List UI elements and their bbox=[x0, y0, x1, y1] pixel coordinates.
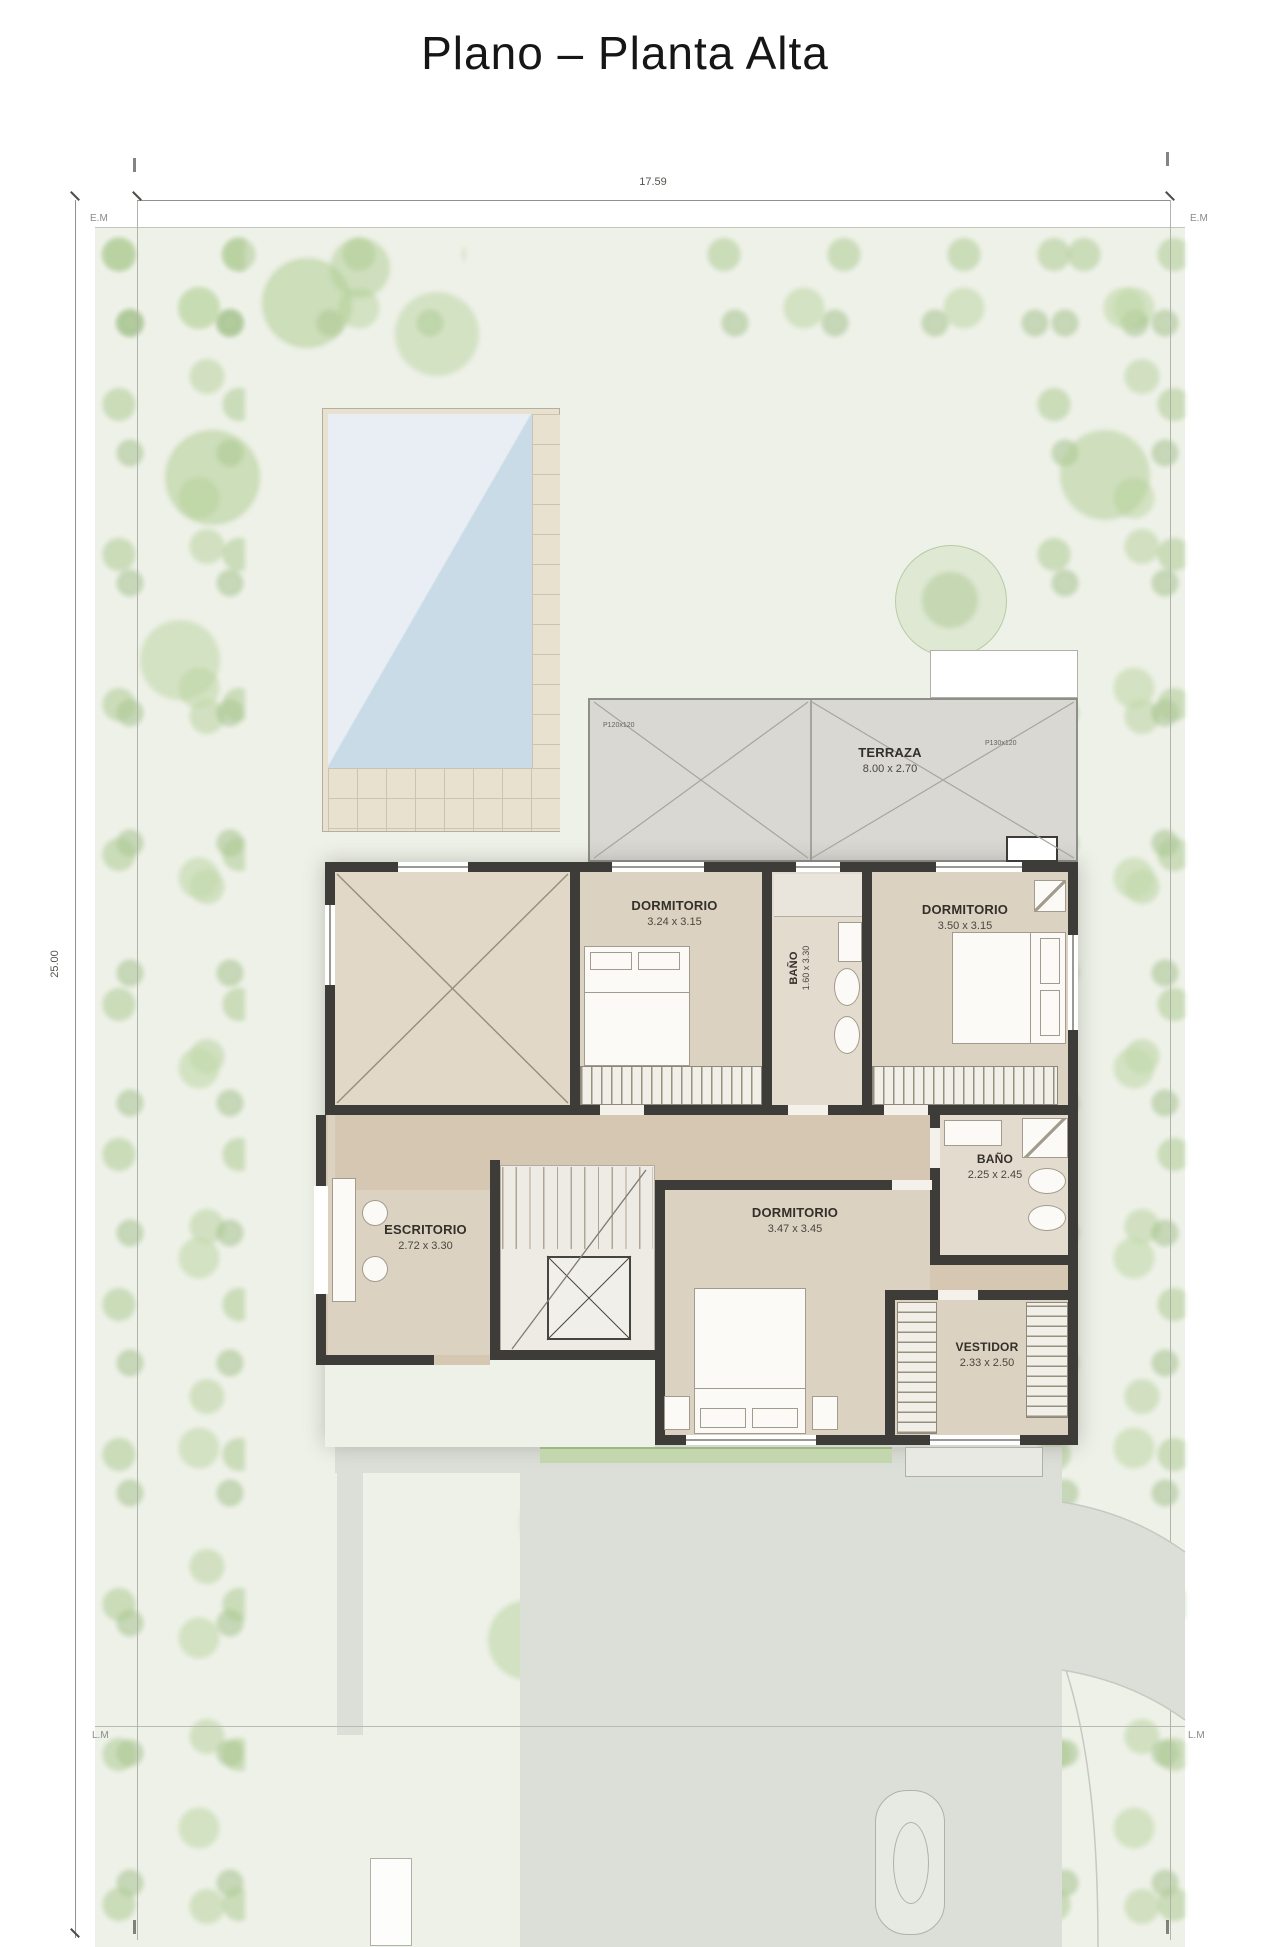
terrace-roof-edge bbox=[930, 650, 1078, 698]
label-dormitorio-1: DORMITORIO 3.24 x 3.15 bbox=[582, 898, 767, 929]
boundary-label-lm-right: L.M bbox=[1188, 1730, 1205, 1741]
tree bbox=[140, 620, 220, 700]
label-escritorio-name: ESCRITORIO bbox=[384, 1222, 467, 1237]
floor-plan-canvas: Plano – Planta Alta 17.59 25.00 E.M E.M … bbox=[0, 0, 1280, 1947]
window-tag-right: P130x120 bbox=[985, 740, 1017, 747]
tree bbox=[1060, 430, 1150, 520]
footprint-cutout bbox=[490, 1360, 655, 1447]
terrace-divider bbox=[810, 700, 812, 860]
pool-deck-bottom bbox=[328, 768, 560, 831]
ac-unit bbox=[1006, 836, 1058, 862]
window bbox=[936, 862, 1022, 872]
closet-dormitorio-2 bbox=[872, 1066, 1058, 1105]
dimension-line-top bbox=[137, 200, 1170, 201]
label-banio-1-name: BAÑO bbox=[788, 951, 800, 984]
lot-width-dimension: 17.59 bbox=[553, 176, 753, 188]
bed-fold-line bbox=[1030, 932, 1031, 1044]
planter-strip bbox=[540, 1447, 892, 1463]
window bbox=[398, 862, 468, 872]
nightstand bbox=[812, 1396, 838, 1430]
label-escritorio-size: 2.72 x 3.30 bbox=[338, 1239, 513, 1253]
page-title: Plano – Planta Alta bbox=[0, 26, 1250, 80]
label-banio-2-name: BAÑO bbox=[977, 1152, 1013, 1166]
tree bbox=[330, 238, 390, 298]
label-terraza-size: 8.00 x 2.70 bbox=[790, 762, 990, 776]
stair-void bbox=[547, 1256, 631, 1340]
wall bbox=[316, 1355, 434, 1365]
wall bbox=[862, 862, 872, 1115]
tree bbox=[922, 572, 978, 628]
wall bbox=[325, 862, 335, 1115]
corner-mark bbox=[1166, 152, 1169, 166]
boundary-line-right bbox=[1170, 200, 1171, 1940]
walkway-left bbox=[337, 1447, 363, 1735]
corner-mark bbox=[1166, 1920, 1169, 1934]
window bbox=[612, 862, 704, 872]
toilet-banio-1 bbox=[834, 968, 860, 1006]
label-dormitorio-3: DORMITORIO 3.47 x 3.45 bbox=[700, 1205, 890, 1236]
window bbox=[796, 862, 840, 872]
label-banio-1-size: 1.60 x 3.30 bbox=[801, 908, 813, 1028]
label-dormitorio-3-size: 3.47 x 3.45 bbox=[700, 1222, 890, 1236]
bidet-banio-1 bbox=[834, 1016, 860, 1054]
label-terraza: TERRAZA 8.00 x 2.70 bbox=[790, 745, 990, 776]
balcony-vestidor bbox=[905, 1447, 1043, 1477]
chair-escritorio bbox=[362, 1256, 388, 1282]
pillow bbox=[638, 952, 680, 970]
wall bbox=[570, 862, 580, 1115]
corner-mark bbox=[133, 1920, 136, 1934]
utility-box bbox=[370, 1858, 412, 1946]
bidet-banio-2 bbox=[1028, 1205, 1066, 1231]
boundary-line-left bbox=[137, 200, 138, 1940]
tree bbox=[165, 430, 260, 525]
bed-fold-line bbox=[584, 992, 690, 993]
sink-banio-1 bbox=[838, 922, 862, 962]
boundary-line-lm bbox=[95, 1726, 1185, 1727]
pool-water bbox=[328, 414, 532, 768]
label-vestidor-size: 2.33 x 2.50 bbox=[908, 1356, 1066, 1370]
door-opening bbox=[938, 1290, 978, 1300]
bed-fold-line bbox=[694, 1388, 806, 1389]
wall bbox=[885, 1290, 1078, 1300]
stair-treads bbox=[502, 1167, 653, 1249]
window bbox=[325, 905, 335, 985]
room-void bbox=[335, 872, 570, 1105]
wall bbox=[490, 1160, 500, 1360]
label-terraza-name: TERRAZA bbox=[858, 745, 922, 760]
footprint-cutout bbox=[325, 1365, 490, 1447]
pillow bbox=[590, 952, 632, 970]
label-dormitorio-2-size: 3.50 x 3.15 bbox=[872, 919, 1058, 933]
label-vestidor-name: VESTIDOR bbox=[956, 1340, 1019, 1354]
wall bbox=[885, 1290, 895, 1445]
pillow bbox=[752, 1408, 798, 1428]
window bbox=[1068, 935, 1078, 1030]
door-opening bbox=[892, 1180, 932, 1190]
driveway bbox=[520, 1447, 1062, 1947]
vegetation-top-right bbox=[700, 232, 1185, 340]
french-door-opening bbox=[314, 1186, 328, 1294]
boundary-label-em-right: E.M bbox=[1190, 213, 1208, 224]
door-opening bbox=[788, 1105, 828, 1115]
pillow bbox=[1040, 938, 1060, 984]
door-opening bbox=[884, 1105, 928, 1115]
corner-mark bbox=[133, 158, 136, 172]
terrace bbox=[588, 698, 1078, 862]
boundary-label-lm-left: L.M bbox=[92, 1730, 109, 1741]
label-dormitorio-2: DORMITORIO 3.50 x 3.15 bbox=[872, 902, 1058, 933]
wall bbox=[325, 1105, 1078, 1115]
label-dormitorio-1-size: 3.24 x 3.15 bbox=[582, 915, 767, 929]
window-tag-left: P120x120 bbox=[603, 722, 635, 729]
closet-dormitorio-1 bbox=[580, 1066, 762, 1105]
label-banio-1: BAÑO 1.60 x 3.30 bbox=[787, 908, 813, 1028]
window bbox=[930, 1435, 1020, 1445]
window bbox=[686, 1435, 816, 1445]
label-vestidor: VESTIDOR 2.33 x 2.50 bbox=[908, 1340, 1066, 1370]
label-banio-2: BAÑO 2.25 x 2.45 bbox=[935, 1152, 1055, 1182]
wall bbox=[930, 1255, 1078, 1265]
boundary-label-em-left: E.M bbox=[90, 213, 108, 224]
label-escritorio: ESCRITORIO 2.72 x 3.30 bbox=[338, 1222, 513, 1253]
tree bbox=[395, 292, 479, 376]
label-dormitorio-1-name: DORMITORIO bbox=[631, 898, 717, 913]
planter-oval-inner bbox=[893, 1822, 929, 1904]
boundary-line-em bbox=[95, 227, 1185, 228]
label-dormitorio-3-name: DORMITORIO bbox=[752, 1205, 838, 1220]
label-banio-2-size: 2.25 x 2.45 bbox=[935, 1168, 1055, 1182]
label-dormitorio-2-name: DORMITORIO bbox=[922, 902, 1008, 917]
nightstand bbox=[664, 1396, 690, 1430]
walkway-strip bbox=[335, 1447, 521, 1473]
pillow bbox=[700, 1408, 746, 1428]
door-opening bbox=[600, 1105, 644, 1115]
vanity-banio-2 bbox=[944, 1120, 1002, 1146]
pillow bbox=[1040, 990, 1060, 1036]
lot-depth-dimension: 25.00 bbox=[49, 919, 61, 1009]
dimension-line-left bbox=[75, 200, 76, 1938]
wall bbox=[490, 1350, 660, 1360]
